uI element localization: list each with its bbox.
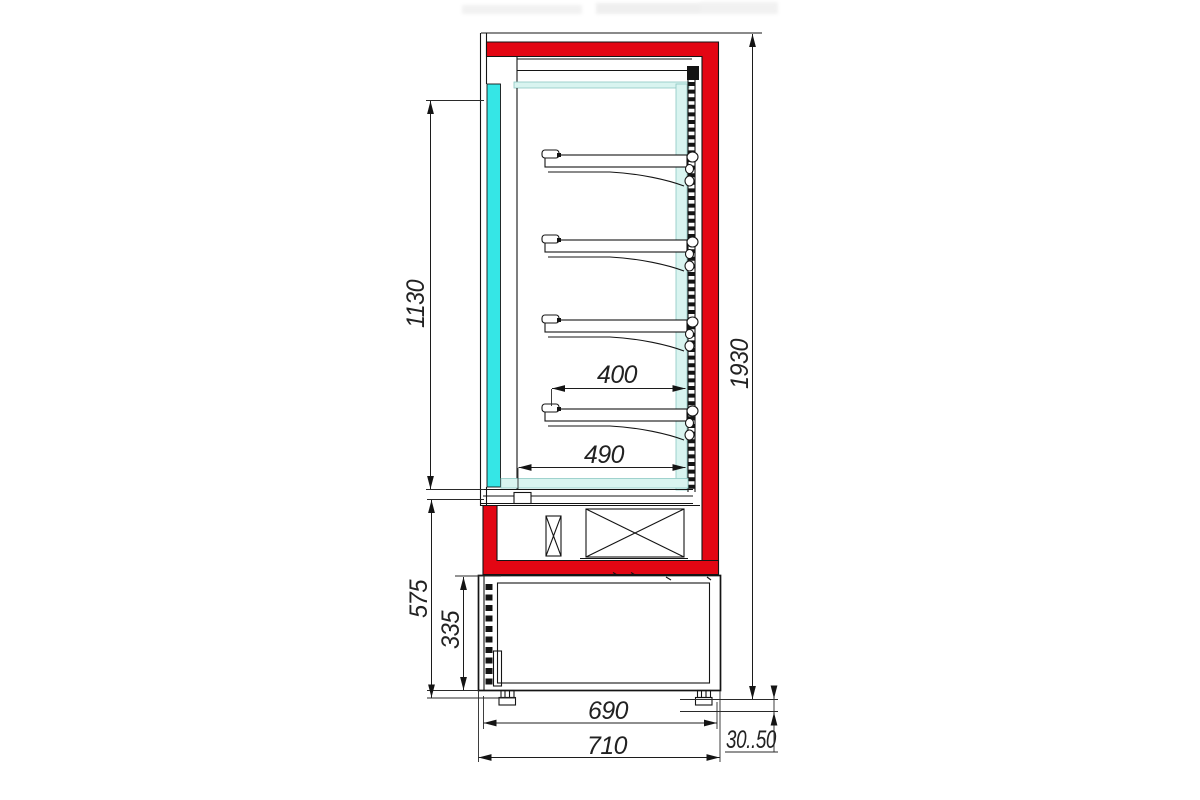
foot-thread (501, 691, 514, 698)
bracket-hook (686, 419, 694, 428)
foot-base (696, 698, 713, 706)
bracket-hook (685, 430, 694, 440)
rear-air-duct (676, 84, 687, 490)
dim-label-overall-depth: 710 (587, 732, 628, 760)
drawing-canvas: 1130 1930 575 335 400 490 690 710 30..50 (0, 0, 1200, 800)
machine-section (546, 509, 688, 559)
shelf-slab (545, 240, 687, 252)
price-strip-clip (557, 153, 561, 157)
foot-rear (696, 691, 713, 706)
lamp-strip (514, 82, 689, 88)
shelves (542, 150, 698, 440)
dim-label-overall-height: 1930 (726, 338, 754, 389)
dim-label-leg-adjust-range: 30..50 (726, 726, 776, 754)
shelf (542, 315, 698, 351)
shelf (542, 150, 698, 186)
dim-label-interior-height: 1130 (402, 279, 430, 328)
shelf-bracket (548, 426, 684, 440)
deck-step (514, 493, 531, 504)
shelf-bracket (548, 337, 684, 351)
shelf (542, 235, 698, 271)
shelf-bracket (548, 257, 684, 271)
front-glass (487, 84, 501, 487)
shelf-slab (545, 320, 687, 332)
bracket-hook (685, 261, 694, 271)
shelf-hook (687, 237, 698, 247)
bracket-hook (686, 165, 694, 174)
dim-label-base-section-height: 575 (405, 579, 433, 618)
price-strip-clip (557, 407, 561, 411)
bracket-hook (685, 176, 694, 186)
shelf-front-bumper (542, 404, 559, 412)
price-strip-clip (557, 238, 561, 242)
shelf-hook (687, 406, 698, 416)
foot-base (499, 698, 516, 706)
shelf-front-bumper (542, 150, 559, 158)
shelf-front-bumper (542, 315, 559, 323)
shelf (542, 404, 698, 440)
shelf-hook (687, 317, 698, 327)
deck-liner (501, 479, 688, 489)
dim-label-body-depth: 690 (588, 697, 629, 725)
screw-tick (666, 577, 671, 580)
lower-housing (479, 576, 721, 691)
shelf-slab (545, 155, 687, 167)
shelf-hook (687, 152, 698, 162)
watermark-remnant (462, 2, 778, 14)
housing-outer-panel (479, 576, 721, 691)
shelf-front-bumper (542, 235, 559, 243)
bracket-hook (686, 330, 694, 339)
display-case-drawing: 1130 1930 575 335 400 490 690 710 30..50 (0, 0, 1200, 800)
bracket-hook (686, 250, 694, 259)
dimension-annotations: 1130 1930 575 335 400 490 690 710 30..50 (402, 34, 778, 762)
dim-label-machine-compartment-height: 335 (437, 610, 465, 649)
bracket-hook (685, 341, 694, 351)
dim-label-interior-depth: 490 (584, 441, 625, 469)
rail-top-bracket (687, 66, 699, 80)
price-strip-clip (557, 318, 561, 322)
dim-label-shelf-depth: 400 (597, 361, 638, 389)
housing-inner-panel (498, 583, 710, 683)
shelf-slab (545, 409, 687, 421)
foot-thread (698, 691, 711, 698)
shelf-bracket (548, 172, 684, 186)
screw-tick (707, 577, 711, 580)
